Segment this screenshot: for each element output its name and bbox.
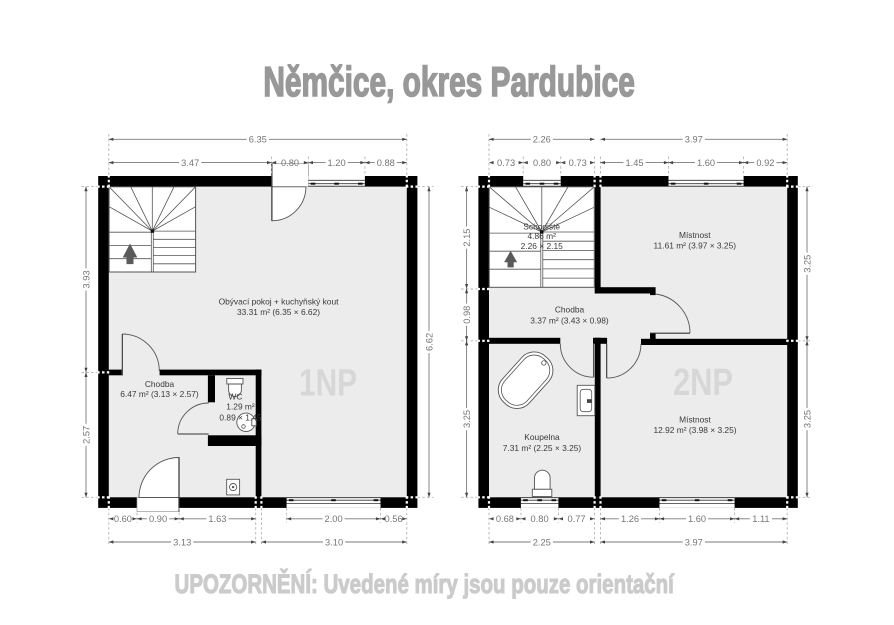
svg-text:Koupelna: Koupelna: [524, 432, 560, 442]
svg-text:2.26: 2.26: [533, 135, 551, 145]
svg-text:6.62: 6.62: [424, 333, 434, 351]
svg-text:0.56: 0.56: [385, 514, 403, 524]
svg-text:Obývací pokoj + kuchyňský kout: Obývací pokoj + kuchyňský kout: [219, 297, 340, 307]
svg-text:3.10: 3.10: [325, 537, 343, 547]
svg-text:0.68: 0.68: [496, 514, 514, 524]
svg-text:2NP: 2NP: [673, 362, 733, 404]
svg-text:2.00: 2.00: [325, 514, 343, 524]
svg-text:WC: WC: [228, 392, 242, 402]
svg-text:0.73: 0.73: [569, 158, 587, 168]
svg-text:3.13: 3.13: [173, 537, 191, 547]
svg-text:33.31 m² (6.35 × 6.62): 33.31 m² (6.35 × 6.62): [237, 307, 320, 317]
svg-text:0.60: 0.60: [114, 514, 132, 524]
svg-text:1.20: 1.20: [328, 158, 346, 168]
svg-text:0.80: 0.80: [531, 514, 549, 524]
svg-text:0.80: 0.80: [533, 158, 551, 168]
svg-text:11.61 m² (3.97 × 3.25): 11.61 m² (3.97 × 3.25): [654, 240, 737, 250]
svg-text:4.86 m²: 4.86 m²: [527, 231, 556, 241]
svg-text:6.47 m² (3.13 × 2.57): 6.47 m² (3.13 × 2.57): [120, 389, 199, 399]
svg-text:6.35: 6.35: [249, 135, 267, 145]
svg-text:0.92: 0.92: [756, 158, 774, 168]
svg-text:3.25: 3.25: [802, 410, 812, 428]
svg-text:0.98: 0.98: [462, 306, 472, 324]
svg-text:3.37 m² (3.43 × 0.98): 3.37 m² (3.43 × 0.98): [530, 316, 609, 326]
svg-text:0.73: 0.73: [497, 158, 515, 168]
svg-text:1.60: 1.60: [688, 514, 706, 524]
svg-text:0.88: 0.88: [377, 158, 395, 168]
svg-text:Chodba: Chodba: [145, 379, 175, 389]
svg-text:3.97: 3.97: [685, 135, 703, 145]
svg-text:1.11: 1.11: [752, 514, 769, 524]
svg-text:1.26: 1.26: [621, 514, 639, 524]
svg-text:2.25: 2.25: [533, 537, 551, 547]
svg-text:2.26 × 2.15: 2.26 × 2.15: [521, 241, 563, 251]
svg-text:1.63: 1.63: [208, 514, 226, 524]
svg-text:1.45: 1.45: [625, 158, 643, 168]
svg-text:UPOZORNĚNÍ: Uvedené míry jsou: UPOZORNĚNÍ: Uvedené míry jsou pouze orie…: [175, 569, 676, 599]
svg-text:3.25: 3.25: [802, 255, 812, 273]
svg-text:Schodiště: Schodiště: [523, 221, 560, 231]
svg-text:Němčice, okres Pardubice: Němčice, okres Pardubice: [263, 58, 634, 105]
svg-text:Místnost: Místnost: [679, 414, 711, 424]
svg-text:0.89 × 1.45: 0.89 × 1.45: [219, 413, 261, 423]
svg-text:3.93: 3.93: [81, 270, 91, 288]
svg-text:1NP: 1NP: [299, 363, 357, 405]
svg-text:1.60: 1.60: [697, 158, 715, 168]
svg-text:3.47: 3.47: [181, 158, 199, 168]
svg-text:3.97: 3.97: [685, 537, 703, 547]
svg-text:2.15: 2.15: [462, 229, 472, 247]
svg-text:0.90: 0.90: [149, 514, 167, 524]
svg-text:7.31 m² (2.25 × 3.25): 7.31 m² (2.25 × 3.25): [503, 443, 582, 453]
svg-text:12.92 m² (3.98 × 3.25): 12.92 m² (3.98 × 3.25): [653, 425, 736, 435]
svg-text:0.77: 0.77: [567, 514, 585, 524]
svg-text:Chodba: Chodba: [555, 305, 585, 315]
svg-text:Místnost: Místnost: [679, 230, 711, 240]
svg-text:1.29 m²: 1.29 m²: [226, 402, 255, 412]
svg-text:0.80: 0.80: [281, 158, 299, 168]
svg-text:3.25: 3.25: [462, 410, 472, 428]
svg-text:2.57: 2.57: [81, 426, 91, 444]
